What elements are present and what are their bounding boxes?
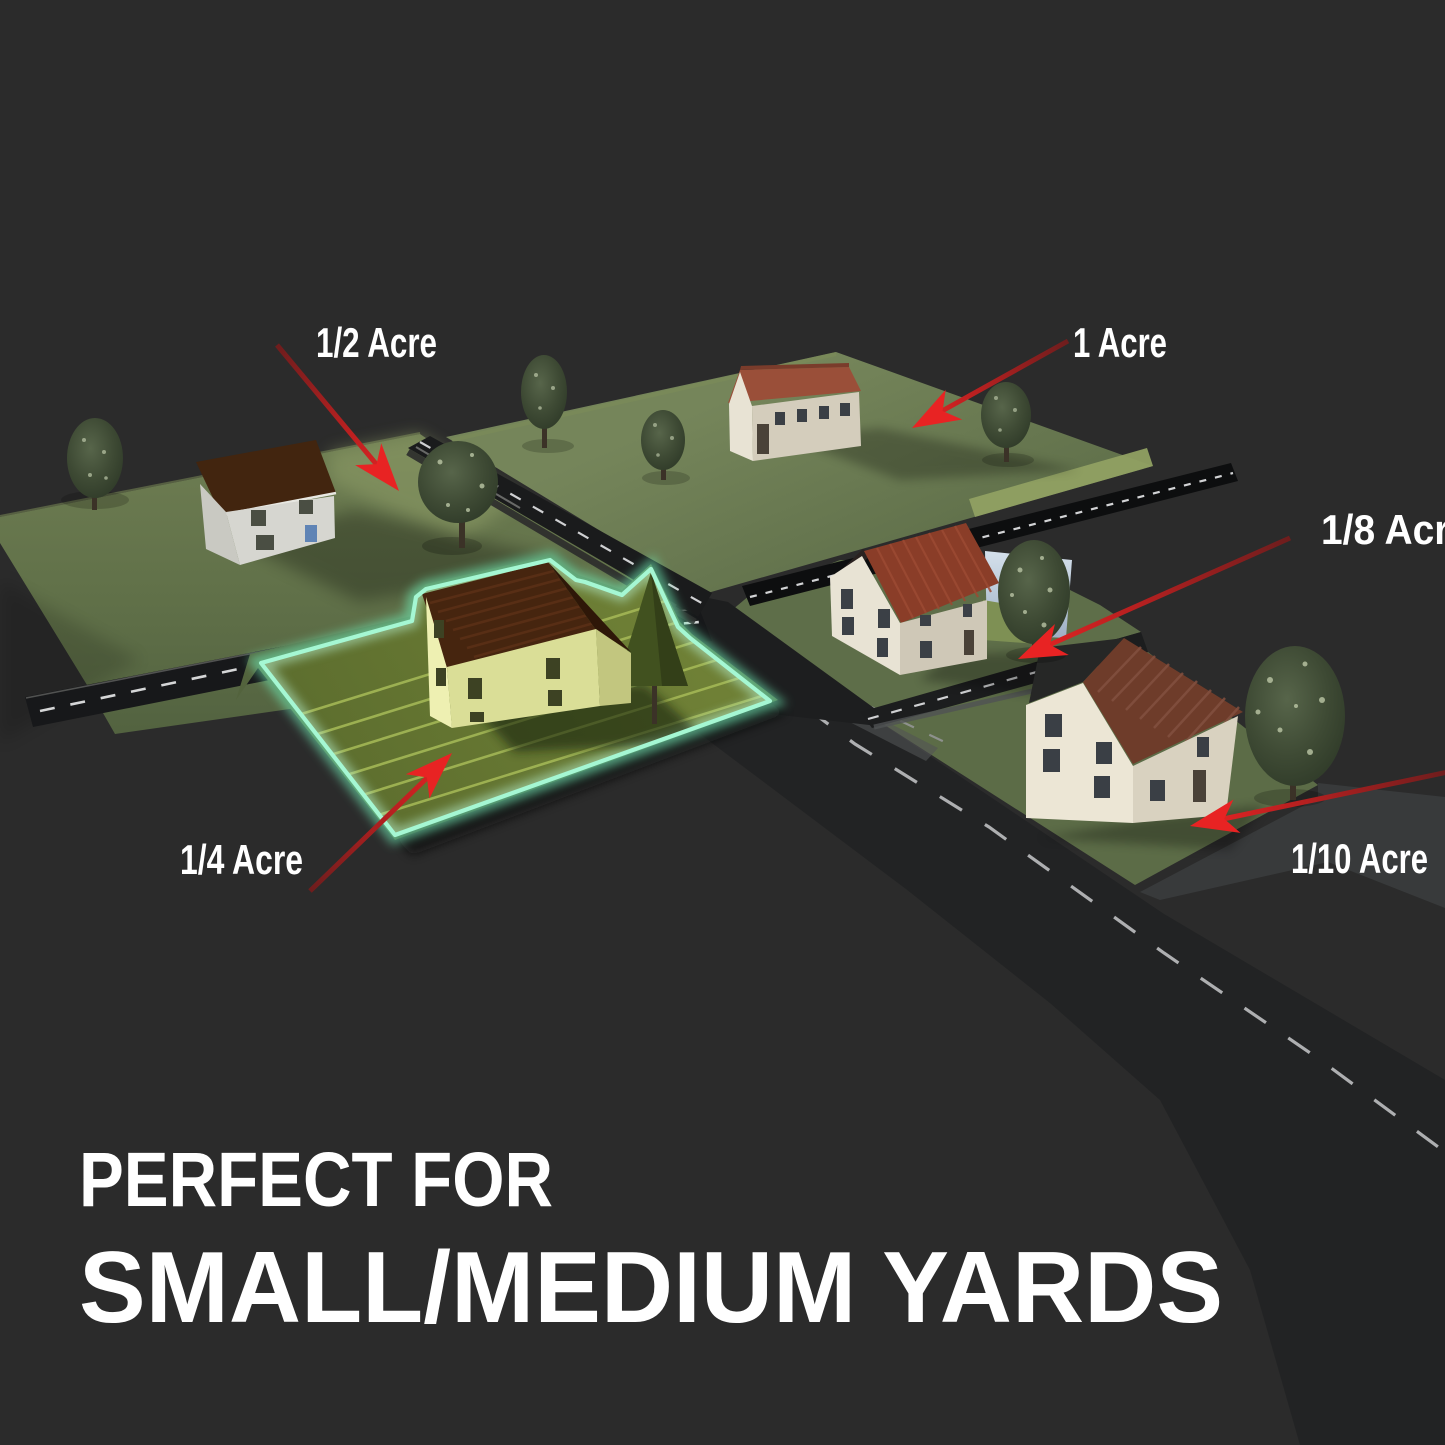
svg-text:1/8 Acre: 1/8 Acre bbox=[1321, 506, 1445, 553]
svg-text:1/4 Acre: 1/4 Acre bbox=[180, 836, 303, 883]
svg-text:PERFECT FOR: PERFECT FOR bbox=[79, 1137, 553, 1223]
svg-text:1/2 Acre: 1/2 Acre bbox=[316, 319, 437, 366]
svg-text:1 Acre: 1 Acre bbox=[1073, 319, 1167, 366]
svg-text:1/10 Acre: 1/10 Acre bbox=[1291, 835, 1428, 882]
svg-text:SMALL/MEDIUM YARDS: SMALL/MEDIUM YARDS bbox=[79, 1232, 1223, 1344]
